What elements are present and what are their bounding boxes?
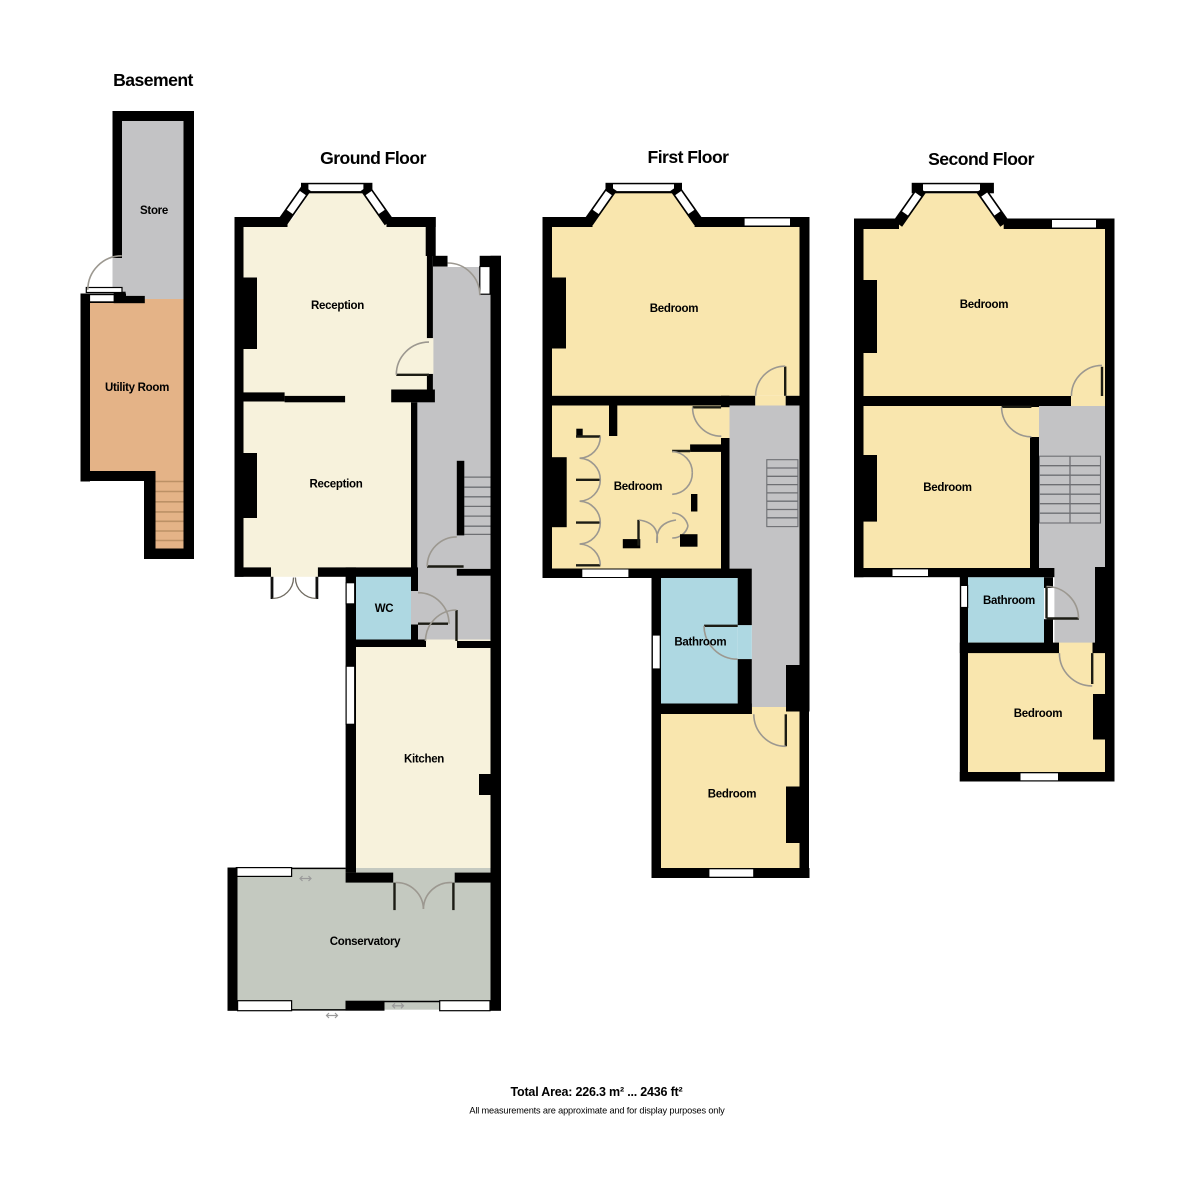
svg-text:Bedroom: Bedroom (614, 481, 662, 493)
svg-text:Kitchen: Kitchen (404, 754, 444, 766)
svg-text:WC: WC (375, 603, 394, 615)
svg-text:Basement: Basement (113, 70, 193, 90)
svg-text:Bedroom: Bedroom (708, 789, 756, 801)
svg-text:Reception: Reception (310, 479, 363, 491)
svg-text:Reception: Reception (311, 300, 364, 312)
svg-text:Bedroom: Bedroom (1014, 708, 1062, 720)
svg-text:Utility Room: Utility Room (105, 382, 169, 394)
svg-text:Total Area: 226.3 m² ... 2436: Total Area: 226.3 m² ... 2436 ft² (511, 1085, 683, 1099)
svg-text:First Floor: First Floor (648, 147, 730, 167)
svg-text:Ground Floor: Ground Floor (320, 148, 426, 168)
svg-text:Bedroom: Bedroom (650, 303, 698, 315)
svg-text:Bedroom: Bedroom (960, 299, 1008, 311)
svg-text:Second Floor: Second Floor (928, 149, 1035, 169)
svg-text:All measurements are approxima: All measurements are approximate and for… (469, 1106, 725, 1116)
svg-text:Bedroom: Bedroom (923, 482, 971, 494)
svg-text:Bathroom: Bathroom (674, 636, 726, 648)
svg-text:Conservatory: Conservatory (330, 936, 401, 948)
svg-text:Store: Store (140, 205, 168, 217)
svg-text:Bathroom: Bathroom (983, 595, 1035, 607)
